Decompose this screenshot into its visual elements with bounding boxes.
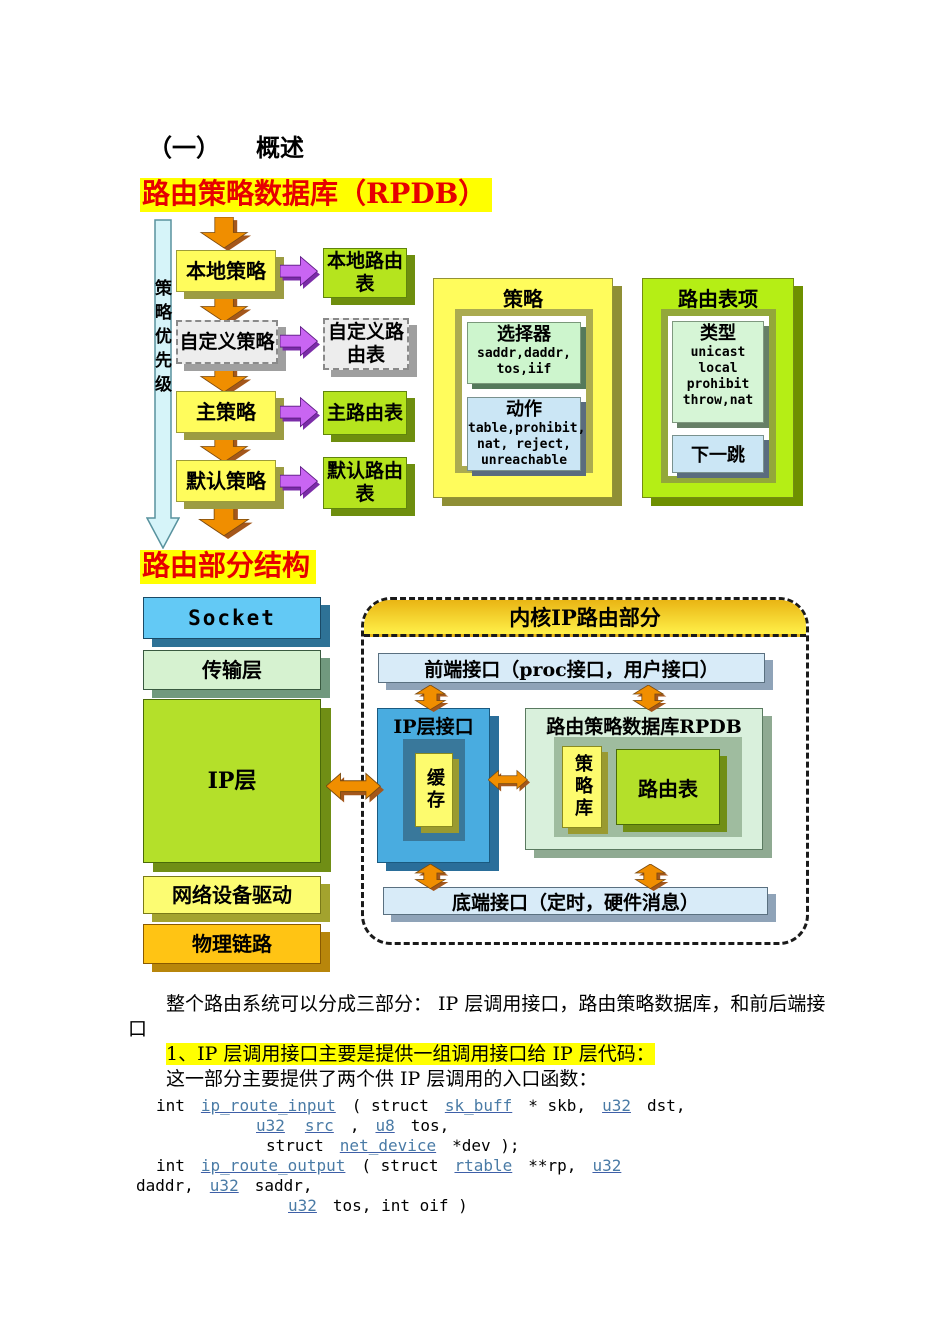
route-entry-panel: 类型 unicast local prohibit throw,nat 下一跳 bbox=[661, 309, 776, 483]
heading-number: （一） bbox=[148, 133, 220, 162]
double-arrow-vertical-icon bbox=[628, 864, 676, 891]
code-link[interactable]: u32 bbox=[256, 1116, 285, 1135]
code-link[interactable]: u32 bbox=[592, 1156, 621, 1175]
highlight-text: 1、IP 层调用接口主要是提供一组调用接口给 IP 层代码： bbox=[166, 1043, 655, 1065]
double-arrow-vertical-icon bbox=[408, 864, 456, 891]
action-box: 动作 table,prohibit, nat, reject, unreacha… bbox=[467, 397, 581, 471]
front-interface-bar: 前端接口（proc接口，用户接口） bbox=[378, 653, 765, 683]
selector-title: 选择器 bbox=[468, 323, 580, 346]
code-text: ( struct bbox=[352, 1096, 429, 1115]
policy-detail-box: 策略 选择器 saddr,daddr, tos,iif 动作 table,pro… bbox=[433, 278, 613, 498]
rpdb-diagram: 策略优先级 本地策略 自定义策略 主策略 默认策略 本地路由表 自定义路由表 主… bbox=[140, 215, 820, 555]
code-text: , bbox=[350, 1116, 360, 1135]
double-arrow-vertical-icon bbox=[626, 685, 674, 712]
code-line: u32src,u8tos, bbox=[128, 1116, 840, 1136]
rpdb-inset: 策略库 路由表 bbox=[554, 737, 742, 837]
table-box-main: 主路由表 bbox=[323, 391, 407, 435]
code-link[interactable]: u32 bbox=[210, 1176, 239, 1195]
code-text: ( struct bbox=[361, 1156, 438, 1175]
code-line: structnet_device*dev ); bbox=[128, 1136, 840, 1156]
code-text: daddr, bbox=[136, 1176, 194, 1195]
code-text: int bbox=[156, 1096, 185, 1115]
stack-box-ip-layer: IP层 bbox=[143, 699, 321, 863]
body-text: 整个路由系统可以分成三部分： IP 层调用接口，路由策略数据库，和前后端接口 1… bbox=[128, 992, 840, 1216]
code-link[interactable]: u32 bbox=[602, 1096, 631, 1115]
paragraph-functions: 这一部分主要提供了两个供 IP 层调用的入口函数： bbox=[128, 1067, 840, 1092]
paragraph-overview: 整个路由系统可以分成三部分： IP 层调用接口，路由策略数据库，和前后端接口 bbox=[128, 992, 840, 1042]
code-line: intip_route_output( structrtable**rp,u32 bbox=[128, 1156, 840, 1176]
right-arrow-icon bbox=[280, 325, 320, 359]
selector-line: saddr,daddr, bbox=[468, 346, 580, 362]
code-block: intip_route_input( structsk_buff* skb,u3… bbox=[128, 1096, 840, 1216]
policy-box-main: 主策略 bbox=[176, 391, 276, 433]
code-text: int bbox=[156, 1156, 185, 1175]
stack-box-physical: 物理链路 bbox=[143, 924, 321, 964]
code-link[interactable]: sk_buff bbox=[445, 1096, 512, 1115]
type-line: throw,nat bbox=[673, 393, 763, 409]
action-title: 动作 bbox=[468, 398, 580, 421]
section-heading: （一）概述 bbox=[148, 128, 304, 163]
action-line: table,prohibit, bbox=[468, 421, 580, 437]
code-text: saddr, bbox=[255, 1176, 313, 1195]
ip-interface-box: IP层接口 缓存 bbox=[377, 708, 490, 863]
code-link[interactable]: rtable bbox=[454, 1156, 512, 1175]
code-text: *dev ); bbox=[452, 1136, 519, 1155]
code-link[interactable]: ip_route_output bbox=[201, 1156, 346, 1175]
action-line: nat, reject, bbox=[468, 437, 580, 453]
document-page: { "heading": { "num": "（一）", "title": "概… bbox=[0, 0, 950, 1344]
code-link[interactable]: u32 bbox=[288, 1196, 317, 1215]
down-arrow-icon bbox=[198, 361, 254, 395]
code-text: tos, int oif ) bbox=[333, 1196, 468, 1215]
route-entry-box: 路由表项 类型 unicast local prohibit throw,nat… bbox=[642, 278, 794, 498]
type-line: unicast bbox=[673, 345, 763, 361]
bottom-interface-bar: 底端接口（定时，硬件消息） bbox=[383, 887, 768, 915]
code-link[interactable]: net_device bbox=[340, 1136, 436, 1155]
stack-box-driver: 网络设备驱动 bbox=[143, 876, 321, 914]
nexthop-box: 下一跳 bbox=[672, 435, 764, 473]
policy-detail-title: 策略 bbox=[434, 283, 612, 312]
down-arrow-icon bbox=[198, 217, 254, 251]
policy-box-default: 默认策略 bbox=[176, 460, 276, 502]
rpdb-title: 路由策略数据库RPDB bbox=[526, 712, 762, 739]
type-line: local bbox=[673, 361, 763, 377]
code-text: dst, bbox=[647, 1096, 686, 1115]
code-link[interactable]: ip_route_input bbox=[201, 1096, 336, 1115]
kernel-routing-header: 内核IP路由部分 bbox=[364, 600, 806, 637]
down-arrow-icon bbox=[198, 503, 254, 539]
policy-box-custom: 自定义策略 bbox=[176, 320, 278, 364]
type-line: prohibit bbox=[673, 377, 763, 393]
table-box-default: 默认路由表 bbox=[323, 457, 407, 509]
code-link[interactable]: src bbox=[305, 1116, 334, 1135]
action-line: unreachable bbox=[468, 453, 580, 469]
table-box-custom: 自定义路由表 bbox=[323, 318, 409, 370]
paragraph-highlighted: 1、IP 层调用接口主要是提供一组调用接口给 IP 层代码： bbox=[128, 1042, 840, 1067]
stack-box-socket: Socket bbox=[143, 597, 321, 639]
right-arrow-icon bbox=[280, 396, 320, 430]
double-arrow-horizontal-icon bbox=[326, 765, 384, 811]
route-entry-title: 路由表项 bbox=[643, 283, 793, 312]
rpdb-box: 路由策略数据库RPDB 策略库 路由表 bbox=[525, 708, 763, 850]
ip-interface-inset: 缓存 bbox=[403, 739, 465, 841]
heading-title: 概述 bbox=[256, 133, 304, 162]
policy-lib-label: 策略库 bbox=[569, 754, 595, 820]
stack-box-transport: 传输层 bbox=[143, 650, 321, 690]
double-arrow-vertical-icon bbox=[408, 685, 456, 712]
type-title: 类型 bbox=[673, 322, 763, 345]
cache-box: 缓存 bbox=[415, 753, 453, 827]
code-line: intip_route_input( structsk_buff* skb,u3… bbox=[128, 1096, 840, 1116]
right-arrow-icon bbox=[280, 255, 320, 289]
right-arrow-icon bbox=[280, 465, 320, 499]
cache-label: 缓存 bbox=[421, 768, 447, 812]
code-line: daddr,u32saddr, bbox=[128, 1176, 840, 1196]
section-title-rpdb: 路由策略数据库（RPDB） bbox=[140, 178, 492, 212]
code-line: u32tos, int oif ) bbox=[128, 1196, 840, 1216]
structure-diagram: Socket 传输层 IP层 网络设备驱动 物理链路 内核IP路由部分 前端接口… bbox=[140, 592, 830, 992]
priority-label: 策略优先级 bbox=[149, 279, 174, 399]
code-text: tos, bbox=[411, 1116, 450, 1135]
ip-interface-title: IP层接口 bbox=[378, 712, 489, 739]
table-box-local: 本地路由表 bbox=[323, 248, 407, 298]
policy-box-local: 本地策略 bbox=[176, 250, 276, 292]
route-table-box: 路由表 bbox=[616, 749, 720, 825]
code-text: struct bbox=[266, 1136, 324, 1155]
selector-line: tos,iif bbox=[468, 362, 580, 378]
code-text: * skb, bbox=[528, 1096, 586, 1115]
policy-detail-panel: 选择器 saddr,daddr, tos,iif 动作 table,prohib… bbox=[455, 309, 593, 473]
code-text: **rp, bbox=[528, 1156, 576, 1175]
selector-box: 选择器 saddr,daddr, tos,iif bbox=[467, 322, 581, 384]
section-title-structure: 路由部分结构 bbox=[140, 550, 316, 584]
policy-lib-box: 策略库 bbox=[562, 746, 602, 828]
code-link[interactable]: u8 bbox=[375, 1116, 394, 1135]
type-box: 类型 unicast local prohibit throw,nat bbox=[672, 321, 764, 423]
double-arrow-horizontal-icon bbox=[488, 758, 530, 804]
